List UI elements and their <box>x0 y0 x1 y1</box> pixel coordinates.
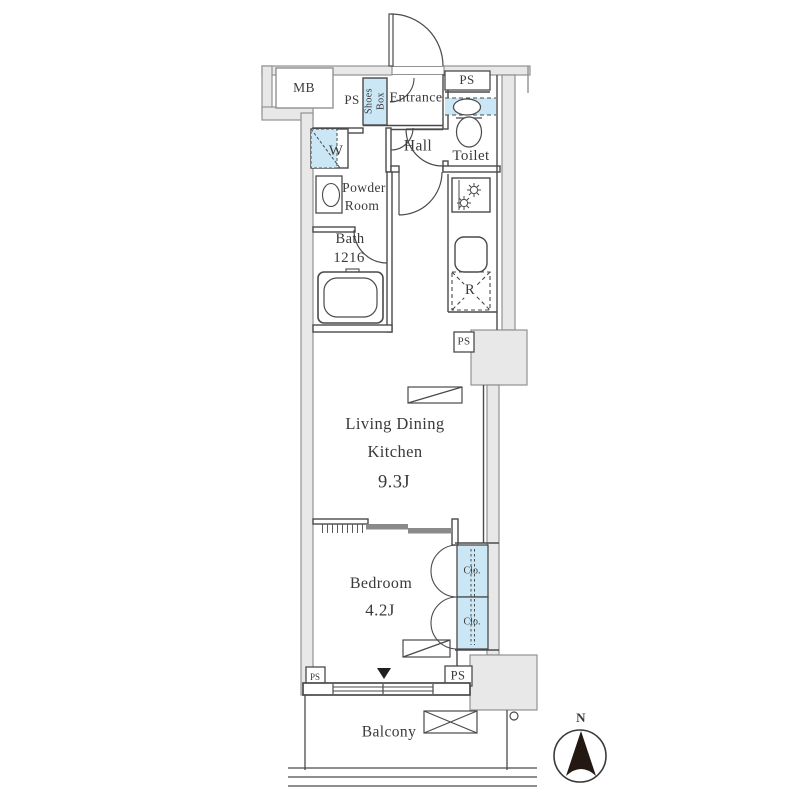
pipe-space-label-mid: PS <box>457 335 470 350</box>
washing-machine-label: W <box>329 141 344 161</box>
orientation-triangle-icon <box>377 668 391 679</box>
toilet-label: Toilet <box>452 146 489 166</box>
stove-burner-icon <box>467 183 481 197</box>
pipe-space-label-bottom-right: PS <box>451 668 466 685</box>
floor-plan: MB PS Shoes Box Entrance PS Toilet Hall … <box>0 0 800 800</box>
outer-walls <box>262 66 537 710</box>
balcony-label: Balcony <box>362 723 416 744</box>
entrance-label: Entrance <box>390 90 443 109</box>
stove-icon <box>452 178 490 212</box>
closet-folding-doors <box>431 545 457 649</box>
sliding-door <box>366 524 452 534</box>
ldk-label: Kitchen <box>367 441 422 463</box>
hall-door <box>399 172 442 215</box>
pipe-space-label-top-right: PS <box>459 71 474 89</box>
bedroom-size-label: 4.2J <box>365 600 394 623</box>
powder-room-label: Powder <box>342 179 386 197</box>
bath-size-label: 1216 <box>333 248 365 268</box>
closet <box>457 545 488 649</box>
ac-unit-icon <box>408 387 462 403</box>
bedroom-label: Bedroom <box>350 573 412 595</box>
shoes-box-label: Shoes Box <box>364 88 387 114</box>
vanity-sink-icon <box>316 176 342 213</box>
compass-north-label: N <box>576 709 586 727</box>
hall-label: Hall <box>404 137 432 158</box>
closet-label: Clo. <box>464 564 481 578</box>
compass-icon <box>554 730 606 782</box>
ldk-size-label: 9.3J <box>378 471 410 496</box>
ldk-label: Living Dining <box>345 413 444 435</box>
pipe-space-label-upper-left: PS <box>344 91 359 109</box>
floor-plan-drawing <box>0 0 800 800</box>
powder-room-label: Room <box>345 197 380 215</box>
refrigerator-label: R <box>465 281 475 301</box>
partition-hatch <box>322 524 365 533</box>
pipe-space-label-bottom-left: PS <box>310 671 320 683</box>
ac-unit-icon <box>403 640 450 657</box>
outdoor-ac-space-icon <box>424 711 477 733</box>
toilet-icon <box>445 98 496 147</box>
kitchen-sink-icon <box>455 237 487 272</box>
drain-pipe-icon <box>510 712 518 720</box>
balcony-window <box>303 683 470 695</box>
meter-box-label: MB <box>293 79 315 97</box>
bathtub-icon <box>318 269 383 323</box>
stove-burner-icon <box>457 196 471 210</box>
entrance-door <box>389 14 443 66</box>
bath-label: Bath <box>336 230 365 250</box>
closet-label: Clo. <box>464 615 481 629</box>
